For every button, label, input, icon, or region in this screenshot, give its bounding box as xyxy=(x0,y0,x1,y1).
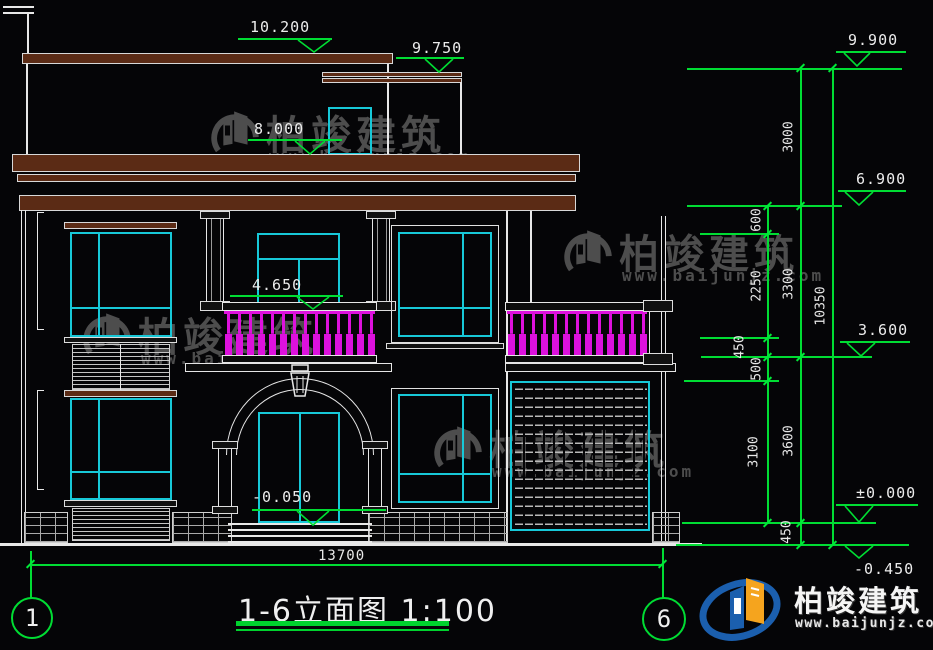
wall-edge-line xyxy=(665,216,666,544)
brand-block: 柏竣建筑 www.baijunjz.com xyxy=(696,568,933,648)
dim-chain-line xyxy=(767,206,769,523)
dim-label: 3600 xyxy=(782,425,797,456)
dim-label: 600 xyxy=(750,208,765,231)
balcony-balusters xyxy=(224,311,375,358)
brand-site: www.baijunjz.com xyxy=(795,616,933,631)
pilaster-capital xyxy=(362,441,388,449)
title-underline xyxy=(236,621,449,626)
wall-edge-line xyxy=(26,64,28,155)
window-1f-right xyxy=(398,394,492,503)
garage-roller-door xyxy=(510,381,650,531)
window-mullion xyxy=(72,307,170,309)
louver-divider-line xyxy=(120,344,121,390)
window-mullion xyxy=(400,307,490,309)
level-marker-icon xyxy=(424,58,454,74)
keystone-ornament xyxy=(284,364,316,400)
level-marker-icon xyxy=(843,52,871,68)
dim-label-total: 10350 xyxy=(814,286,829,325)
wall-edge-line xyxy=(460,82,462,155)
pedestal-base xyxy=(643,353,673,365)
louver-spandrel xyxy=(72,344,170,390)
dim-label: 500 xyxy=(750,357,765,380)
entrance-step-line xyxy=(228,535,372,537)
dim-label: 450 xyxy=(733,335,748,358)
watermark-logo-icon xyxy=(563,222,613,282)
downpipe-line xyxy=(37,489,44,490)
window-mullion xyxy=(462,396,464,501)
cornice-band xyxy=(12,154,580,172)
roof-slab-9750 xyxy=(322,78,462,83)
level-marker-icon xyxy=(294,140,326,156)
window-sill xyxy=(386,343,504,349)
column-shaft xyxy=(372,219,390,302)
entrance-step-line xyxy=(228,529,372,531)
window-mullion xyxy=(72,471,170,473)
stone-plinth xyxy=(368,512,508,543)
parapet-edge-line xyxy=(27,13,29,53)
stone-plinth xyxy=(172,512,232,543)
balcony-rail-top xyxy=(505,302,651,311)
level-label: ±0.000 xyxy=(856,484,916,502)
axis-bubble-1: 1 xyxy=(11,597,53,639)
level-marker-icon xyxy=(296,296,330,311)
column-capital xyxy=(366,211,396,219)
dim-chain-line xyxy=(832,68,834,545)
stone-plinth xyxy=(24,512,68,543)
level-marker-icon xyxy=(844,545,874,560)
level-label: 8.000 xyxy=(254,120,304,138)
cornice-band xyxy=(17,174,576,182)
window-mullion xyxy=(98,400,100,498)
window-mullion xyxy=(98,234,100,335)
balcony-balusters xyxy=(507,311,647,358)
window-sill xyxy=(64,337,177,343)
louver-base-panel xyxy=(72,508,170,541)
level-marker-icon xyxy=(296,510,330,527)
level-label: -0.050 xyxy=(252,488,312,506)
dim-label: 3100 xyxy=(747,436,762,467)
wall-corner-line xyxy=(530,211,532,303)
window-mullion xyxy=(462,234,464,335)
balcony-rail-bottom xyxy=(222,355,377,363)
level-label: 10.200 xyxy=(250,18,310,36)
column-capital xyxy=(200,211,230,219)
downpipe-line xyxy=(37,212,44,213)
ground-line xyxy=(0,543,702,546)
downpipe-line xyxy=(37,329,44,330)
downpipe-line xyxy=(37,390,38,490)
stone-plinth xyxy=(652,512,680,543)
window-2f-right xyxy=(398,232,492,337)
downpipe-line xyxy=(37,212,38,330)
parapet-line xyxy=(3,12,34,14)
wall-edge-line xyxy=(661,216,662,544)
pilaster-shaft xyxy=(368,449,382,506)
pilaster-capital xyxy=(212,441,238,449)
pilaster-shaft xyxy=(218,449,232,506)
axis-bubble-6: 6 xyxy=(642,597,686,641)
title-underline xyxy=(236,629,449,631)
dim-label: 3000 xyxy=(782,121,797,152)
pedestal-cap xyxy=(643,300,673,312)
window-lintel xyxy=(64,222,177,229)
cornice-band xyxy=(19,195,576,211)
cad-elevation-canvas: 柏竣建筑 www.baijunjz.com 柏竣建筑 www.baijunjz.… xyxy=(0,0,933,650)
brand-logo-icon xyxy=(696,570,788,644)
wall-edge-line xyxy=(21,210,22,544)
pedestal-shaft xyxy=(649,312,666,353)
overall-dim-label: 13700 xyxy=(318,548,365,564)
downpipe-line xyxy=(37,390,44,391)
dim-chain-line xyxy=(800,68,802,545)
roof-slab-10200 xyxy=(22,53,393,64)
level-marker-icon xyxy=(844,191,874,207)
column-shaft xyxy=(206,219,224,302)
parapet-line xyxy=(3,6,34,8)
dim-label: 450 xyxy=(780,520,795,543)
window-1f-left xyxy=(70,398,172,500)
axis-number: 1 xyxy=(25,604,39,632)
level-label: 3.600 xyxy=(858,321,908,339)
window-mullion xyxy=(400,473,490,475)
brand-name: 柏竣建筑 xyxy=(794,578,922,620)
roller-door-slats xyxy=(513,384,647,528)
entrance-double-door xyxy=(258,412,340,523)
wall-corner-line xyxy=(506,211,508,544)
level-marker-icon xyxy=(297,39,331,54)
level-label: 9.750 xyxy=(412,39,462,57)
dim-label: 3300 xyxy=(782,268,797,299)
window-2f-left xyxy=(70,232,172,337)
dim-label: 2250 xyxy=(750,270,765,301)
window-lintel xyxy=(64,390,177,397)
wall-edge-line xyxy=(25,210,26,544)
level-label: 6.900 xyxy=(856,170,906,188)
level-label: 4.650 xyxy=(252,276,302,294)
pilaster-base xyxy=(212,506,238,514)
level-label: 9.900 xyxy=(848,31,898,49)
roof-access-door xyxy=(328,107,372,155)
axis-number: 6 xyxy=(657,605,671,633)
window-sill xyxy=(64,500,177,507)
